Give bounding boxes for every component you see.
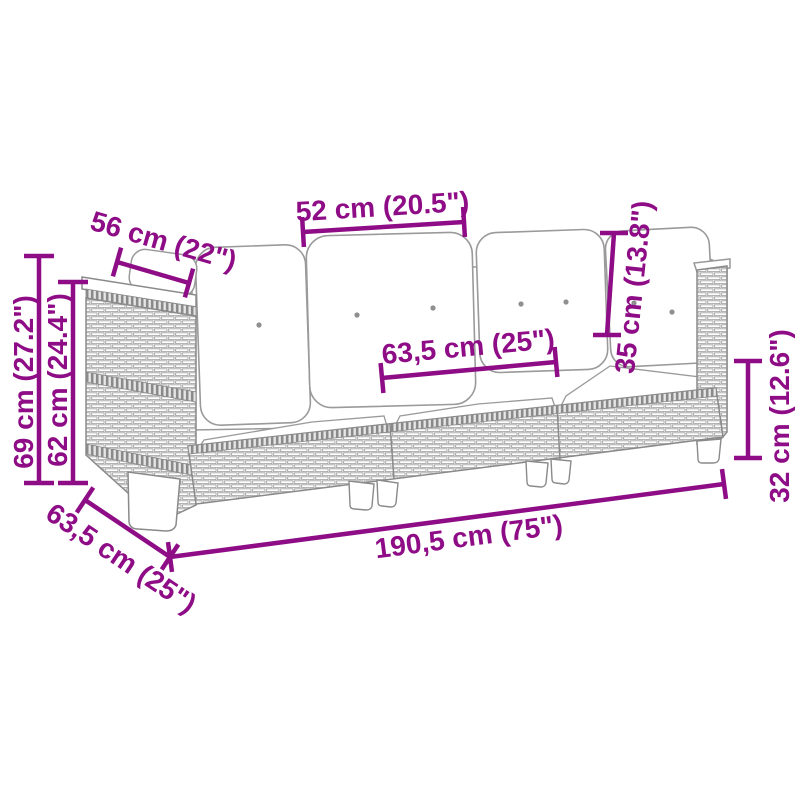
sofa-dimension-figure: 52 cm (20.5") 56 cm (22") 35 cm (13.8") … (0, 0, 800, 800)
sofa-left-armrest (82, 277, 196, 531)
product-dimension-diagram: 52 cm (20.5") 56 cm (22") 35 cm (13.8") … (0, 0, 800, 800)
dimension-label: 62 cm (24.4") (42, 293, 73, 467)
dimension-armrest-height: 62 cm (24.4") (42, 282, 88, 483)
dimension-label: 32 cm (12.6") (764, 329, 795, 503)
dimension-seat-height: 32 cm (12.6") (734, 329, 795, 503)
back-cushion (306, 232, 476, 408)
dimension-label: 69 cm (27.2") (8, 295, 39, 469)
armrest-leg (128, 472, 180, 531)
back-cushion (195, 244, 311, 426)
